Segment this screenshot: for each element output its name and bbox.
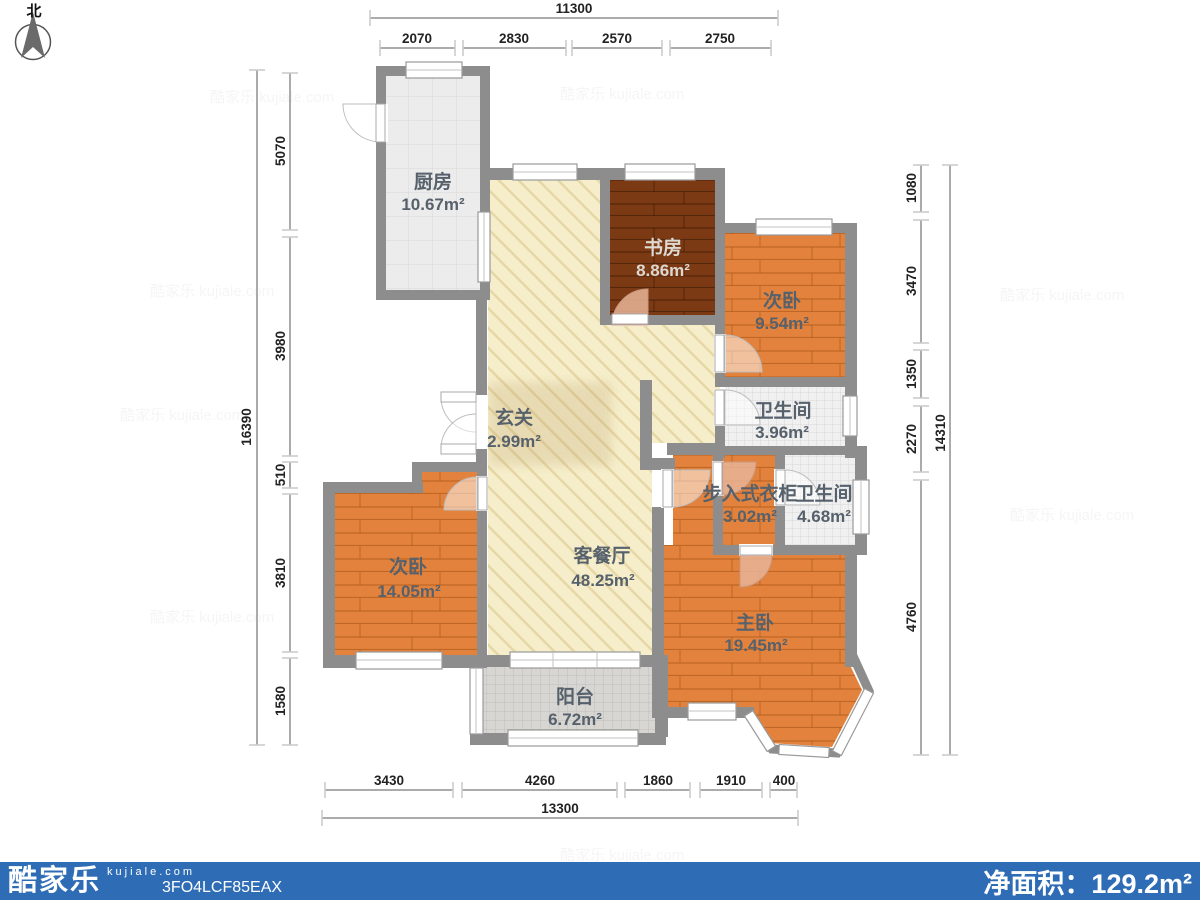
plan-code: 3FO4LCF85EAX bbox=[162, 879, 282, 897]
dim-top-seg: 2570 bbox=[602, 31, 632, 46]
dim-left-total: 16390 bbox=[239, 408, 254, 446]
dim-top-total: 11300 bbox=[556, 1, 593, 16]
room-area-balcony: 6.72m² bbox=[548, 710, 602, 729]
bedroom2-window bbox=[756, 219, 832, 235]
watermark-text: 酷家乐 kujiale.com bbox=[210, 89, 334, 106]
brand-domain: kujiale.com bbox=[107, 866, 282, 878]
room-label-closet: 步入式衣柜 bbox=[702, 482, 797, 505]
room-label-balcony: 阳台 bbox=[556, 685, 594, 708]
floor-plan-page: 酷家乐 kujiale.com 酷家乐 kujiale.com 酷家乐 kuji… bbox=[0, 0, 1200, 900]
bedroom3-window bbox=[356, 652, 442, 669]
dim-bottom-seg: 1910 bbox=[716, 773, 746, 788]
dimensions-bottom: 3430 4260 1860 1910 400 13300 bbox=[322, 773, 798, 826]
room-area-bath2: 4.68m² bbox=[797, 507, 851, 526]
dimensions-left: 16390 5070 3980 510 3810 1580 bbox=[239, 70, 298, 745]
master-window bbox=[688, 703, 736, 720]
brand-logo: 酷家乐 bbox=[8, 863, 101, 899]
dimensions-right: 1080 3470 1350 2270 4760 14310 bbox=[904, 165, 958, 755]
dim-bottom-seg: 4260 bbox=[525, 773, 555, 788]
dim-right-seg: 1080 bbox=[904, 173, 919, 203]
dim-right-seg: 3470 bbox=[904, 266, 919, 296]
bath2-window bbox=[853, 480, 869, 534]
dim-top-seg: 2750 bbox=[705, 31, 735, 46]
north-label: 北 bbox=[26, 3, 41, 20]
dim-bottom-seg: 1860 bbox=[643, 773, 673, 788]
balcony-window bbox=[508, 730, 638, 746]
room-area-living: 48.25m² bbox=[571, 571, 635, 590]
room-label-bedroom2: 次卧 bbox=[763, 289, 801, 312]
dim-left-seg: 3810 bbox=[273, 558, 288, 588]
floor-plan-canvas: 酷家乐 kujiale.com 酷家乐 kujiale.com 酷家乐 kuji… bbox=[0, 0, 1200, 900]
bath1-window bbox=[843, 396, 857, 436]
net-area-label: 净面积： bbox=[983, 862, 1091, 900]
kitchen-pass bbox=[478, 212, 490, 282]
dim-right-seg: 1350 bbox=[904, 359, 919, 389]
kitchen-window bbox=[406, 62, 462, 78]
room-label-bath1: 卫生间 bbox=[754, 399, 811, 422]
brand-block: 酷家乐 kujiale.com 3FO4LCF85EAX bbox=[8, 863, 282, 899]
watermark-text: 酷家乐 kujiale.com bbox=[560, 86, 684, 103]
room-label-bedroom3: 次卧 bbox=[389, 555, 427, 578]
dim-bottom-seg: 400 bbox=[773, 773, 796, 788]
watermark-text: 酷家乐 kujiale.com bbox=[1010, 507, 1134, 524]
room-label-bath2: 卫生间 bbox=[795, 482, 852, 505]
dim-bottom-total: 13300 bbox=[541, 801, 579, 816]
net-area-value: 129.2m² bbox=[1091, 869, 1192, 900]
room-label-kitchen: 厨房 bbox=[414, 170, 452, 193]
room-area-master: 19.45m² bbox=[724, 636, 788, 655]
room-area-bath1: 3.96m² bbox=[755, 423, 809, 442]
study-window bbox=[625, 164, 695, 180]
watermark-text: 酷家乐 kujiale.com bbox=[150, 609, 274, 626]
room-area-bedroom2: 9.54m² bbox=[755, 314, 809, 333]
dim-bottom-seg: 3430 bbox=[374, 773, 404, 788]
footer-bar: 酷家乐 kujiale.com 3FO4LCF85EAX 净面积： 129.2m… bbox=[0, 862, 1200, 900]
dim-left-seg: 5070 bbox=[273, 136, 288, 166]
net-area: 净面积： 129.2m² bbox=[983, 862, 1192, 900]
room-label-master: 主卧 bbox=[736, 612, 774, 634]
dim-top-seg: 2830 bbox=[499, 31, 529, 46]
room-area-entry: 2.99m² bbox=[487, 432, 541, 451]
living-window bbox=[513, 164, 577, 180]
dim-left-seg: 510 bbox=[273, 464, 288, 487]
room-label-living: 客餐厅 bbox=[573, 544, 630, 567]
entry-door bbox=[441, 392, 488, 454]
dim-top-seg: 2070 bbox=[402, 31, 432, 46]
balcony-slider bbox=[510, 652, 640, 668]
watermark-text: 酷家乐 kujiale.com bbox=[1000, 287, 1124, 304]
north-arrow: 北 bbox=[16, 3, 51, 60]
dim-left-seg: 3980 bbox=[273, 331, 288, 361]
kitchen-door bbox=[343, 104, 388, 142]
bay-window-bottom bbox=[779, 744, 830, 757]
watermark-text: 酷家乐 kujiale.com bbox=[120, 407, 244, 424]
room-area-closet: 3.02m² bbox=[723, 507, 777, 526]
room-label-entry: 玄关 bbox=[495, 406, 533, 429]
room-area-bedroom3: 14.05m² bbox=[377, 582, 441, 601]
dim-left-seg: 1580 bbox=[273, 686, 288, 716]
dim-right-seg: 4760 bbox=[904, 602, 919, 632]
room-area-study: 8.86m² bbox=[636, 261, 690, 280]
room-area-kitchen: 10.67m² bbox=[401, 195, 465, 214]
balcony-side-window bbox=[470, 668, 483, 734]
room-label-study: 书房 bbox=[644, 236, 682, 259]
dim-right-seg: 2270 bbox=[904, 424, 919, 454]
dim-right-total: 14310 bbox=[933, 414, 948, 452]
watermark-text: 酷家乐 kujiale.com bbox=[150, 283, 274, 300]
dimensions-top: 11300 2070 2830 2570 2750 bbox=[370, 1, 778, 56]
